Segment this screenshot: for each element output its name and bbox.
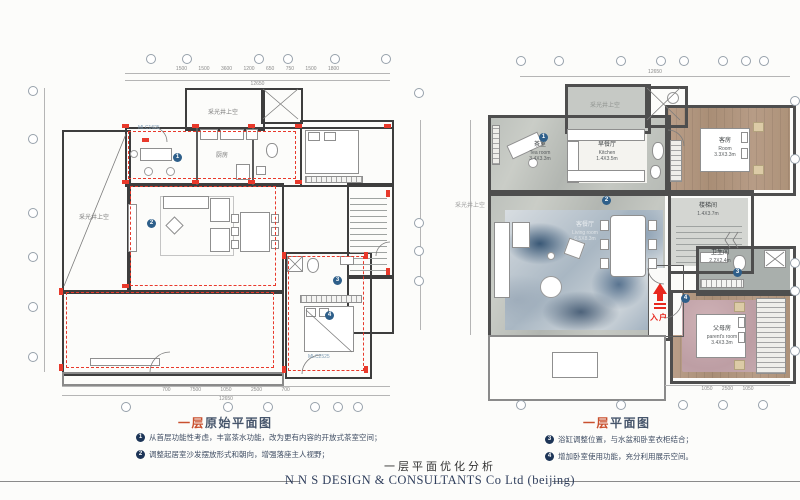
grid-bubble [28, 302, 38, 312]
nightstand [753, 165, 764, 175]
grid-bubble [678, 400, 688, 410]
wardrobe [756, 298, 786, 374]
red-wall-mark [295, 180, 302, 184]
dimension-text: 12650 [62, 396, 390, 402]
grid-bubble [414, 276, 424, 286]
dimension-text: 1500 1500 3600 1200 650 750 1500 1800 [125, 66, 390, 72]
dimension-line [44, 88, 45, 372]
dimension-line [470, 120, 471, 335]
footer-company: N N S DESIGN & CONSULTANTS Co Ltd (beiji… [240, 473, 620, 488]
dining-chair [648, 239, 657, 250]
grid-bubble [414, 88, 424, 98]
grid-bubble [353, 402, 363, 412]
note-text: 调整起居室沙发摆放形式和朝向，增强落座主人视野； [149, 449, 329, 460]
entry-arrow-icon [653, 283, 667, 294]
wardrobe [305, 176, 363, 183]
window-tag: MLC1625 [138, 125, 160, 131]
grid-bubble [790, 258, 800, 268]
wardrobe [670, 140, 682, 182]
room-size: 3.4X3.3m [518, 156, 562, 162]
grid-bubble [741, 56, 751, 66]
dining-table [610, 215, 646, 277]
shaft-fixture [667, 92, 679, 104]
grid-bubble [28, 252, 38, 262]
grid-bubble [718, 400, 728, 410]
note-marker-4: 4 [681, 294, 690, 303]
red-wall-mark [386, 190, 390, 197]
room-label-guest: 客房 Room 3.3X3.3m [704, 138, 746, 158]
shower [764, 250, 786, 268]
grid-bubble [616, 400, 626, 410]
room-size: 2.2X2.4m [700, 258, 740, 264]
dining-chair [648, 220, 657, 231]
red-dashed-zone [130, 186, 276, 286]
dimension-text: 12650 [125, 81, 390, 87]
side-table [547, 252, 555, 260]
red-wall-mark [122, 284, 129, 288]
note-item: 1 从首层功能性考虑，丰富茶水功能，改为更有内容的开放式茶室空间； [136, 432, 382, 443]
red-dashed-zone [66, 292, 274, 368]
grid-bubble [790, 346, 800, 356]
grid-bubble [759, 56, 769, 66]
red-wall-mark [122, 180, 129, 184]
room-name: 楼梯间 [699, 203, 717, 209]
floor-plan-sheet: 采光井上空 采光井上空 厨房 MLC1625 MLC2525 1 2 3 4 1… [0, 0, 800, 500]
note-item: 2 调整起居室沙发摆放形式和朝向，增强落座主人视野； [136, 449, 382, 460]
wall-segment [261, 88, 303, 124]
grid-bubble [263, 402, 273, 412]
grid-bubble [790, 96, 800, 106]
red-wall-mark [192, 124, 199, 128]
room-label-light-well: 采光井上空 [64, 212, 124, 221]
nightstand [734, 360, 745, 370]
room-size: 1.4X3.7m [684, 211, 732, 217]
note-item: 3 浴缸调整位置，与水盆和卧室衣柜结合； [545, 434, 693, 445]
grid-bubble [254, 54, 264, 64]
room-label-stair: 楼梯间 1.4X3.7m [684, 203, 732, 217]
grid-bubble [121, 402, 131, 412]
room-label-living: 客餐厅 Living room 6.5X8.3m [560, 222, 610, 242]
room-size: 3.3X3.3m [704, 152, 746, 158]
pillow [324, 132, 336, 141]
nightstand [734, 302, 745, 312]
entry-arrow-bar [654, 307, 666, 309]
note-bullet: 1 [136, 433, 145, 442]
red-wall-mark [248, 180, 255, 184]
note-text: 增加卧室使用功能，充分利用展示空间。 [558, 451, 693, 462]
grid-bubble [283, 54, 293, 64]
room-name: 茶室 [534, 142, 546, 148]
grid-bubble [616, 56, 626, 66]
note-marker-2: 2 [147, 219, 156, 228]
dimension-text: 12650 [520, 69, 790, 75]
grid-bubble [414, 218, 424, 228]
note-marker-3: 3 [333, 276, 342, 285]
grid-bubble [333, 402, 343, 412]
grid-bubble [223, 402, 233, 412]
chaise [512, 222, 530, 248]
grid-bubble [554, 56, 564, 66]
note-bullet: 3 [545, 435, 554, 444]
toilet [650, 165, 661, 179]
grid-bubble [28, 208, 38, 218]
red-wall-mark [364, 366, 368, 373]
room-name: 卫生间 [711, 250, 729, 256]
note-marker-3: 3 [733, 268, 742, 277]
note-text: 从首层功能性考虑，丰富茶水功能，改为更有内容的开放式茶室空间； [149, 432, 382, 443]
kitchen-counter [567, 129, 645, 141]
room-label-light-well: 采光井上空 [565, 100, 645, 109]
red-wall-mark [364, 252, 368, 259]
room-name: 客房 [719, 138, 731, 144]
dimension-line [125, 73, 390, 74]
room-label-tea: 茶室 Tea room 3.4X3.3m [518, 142, 562, 162]
sofa [494, 222, 510, 298]
grid-bubble [516, 56, 526, 66]
caption-rest: 平面图 [610, 416, 651, 430]
red-wall-mark [122, 124, 129, 128]
grid-bubble [28, 134, 38, 144]
red-wall-mark [295, 124, 302, 128]
red-wall-mark [386, 268, 390, 275]
nightstand [753, 122, 764, 132]
ottoman [540, 276, 562, 298]
red-wall-mark [192, 180, 199, 184]
entry-arrow-shaft [657, 294, 663, 301]
grid-bubble [28, 352, 38, 362]
grid-bubble [758, 400, 768, 410]
grid-bubble [656, 56, 666, 66]
room-label-light-well: 采光井上空 [450, 200, 490, 209]
bookshelf [492, 125, 500, 165]
note-marker-2: 2 [602, 196, 611, 205]
left-plan-notes: 1 从首层功能性考虑，丰富茶水功能，改为更有内容的开放式茶室空间； 2 调整起居… [136, 432, 382, 466]
red-wall-mark [248, 124, 255, 128]
red-wall-mark [384, 124, 391, 128]
caption-highlight: 一层 [583, 416, 610, 430]
grid-bubble [146, 54, 156, 64]
terrace [62, 372, 284, 386]
kitchen-counter [567, 170, 645, 182]
grid-bubble [790, 154, 800, 164]
wash-basin [652, 142, 664, 160]
note-text: 浴缸调整位置，与水盆和卧室衣柜结合； [558, 434, 693, 445]
pillow [308, 132, 320, 141]
dining-chair [600, 258, 609, 269]
grid-bubble [679, 56, 689, 66]
terrace-table [552, 352, 598, 378]
note-marker-1: 1 [173, 153, 182, 162]
right-plan-notes: 3 浴缸调整位置，与水盆和卧室衣柜结合； 4 增加卧室使用功能，充分利用展示空间… [545, 434, 693, 468]
room-label-breakfast: 早餐厅 Kitchen 1.4X3.5m [585, 142, 629, 162]
sheet-title: 一层平面优化分析 [355, 458, 525, 474]
window-tag: MLC2525 [308, 354, 330, 360]
grid-bubble [516, 400, 526, 410]
red-wall-mark [282, 366, 286, 373]
dimension-text: 700 7500 1050 2500 700 [62, 387, 390, 393]
grid-bubble [790, 286, 800, 296]
dresser [700, 279, 744, 288]
room-name: 早餐厅 [598, 142, 616, 148]
room-label-bath: 卫生间 2.2X2.4m [700, 250, 740, 264]
dimension-line [520, 76, 790, 77]
caption-rest: 原始平面图 [205, 416, 273, 430]
red-wall-mark [59, 288, 63, 295]
room-size: 1.4X3.5m [585, 156, 629, 162]
grid-bubble [330, 54, 340, 64]
grid-bubble [182, 54, 192, 64]
room-label-kitchen: 厨房 [200, 150, 244, 159]
grid-bubble [414, 246, 424, 256]
note-bullet: 2 [136, 450, 145, 459]
room-name: 父母房 [713, 326, 731, 332]
dimension-text: 1050 2500 1050 [665, 386, 790, 392]
left-plan-caption: 一层原始平面图 [178, 414, 273, 431]
dining-chair [648, 258, 657, 269]
room-size: 3.4X3.3m [700, 340, 744, 346]
red-wall-mark [282, 252, 286, 259]
entry-label: 入户 [650, 312, 668, 323]
room-label-parent: 父母房 parent's room 3.4X3.3m [700, 326, 744, 346]
room-name: 客餐厅 [576, 222, 594, 228]
note-bullet: 4 [545, 452, 554, 461]
grid-bubble [310, 402, 320, 412]
grid-bubble [28, 86, 38, 96]
entry-arrow-bar [654, 303, 666, 305]
room-label-light-well: 采光井上空 [185, 107, 261, 116]
note-item: 4 增加卧室使用功能，充分利用展示空间。 [545, 451, 693, 462]
note-marker-1: 1 [539, 133, 548, 142]
grid-bubble [381, 54, 391, 64]
note-marker-4: 4 [325, 311, 334, 320]
caption-highlight: 一层 [178, 416, 205, 430]
room-size: 6.5X8.3m [560, 236, 610, 242]
grid-bubble [718, 56, 728, 66]
red-wall-mark [59, 364, 63, 371]
wall-segment [648, 265, 684, 337]
right-plan-caption: 一层平面图 [583, 414, 651, 431]
